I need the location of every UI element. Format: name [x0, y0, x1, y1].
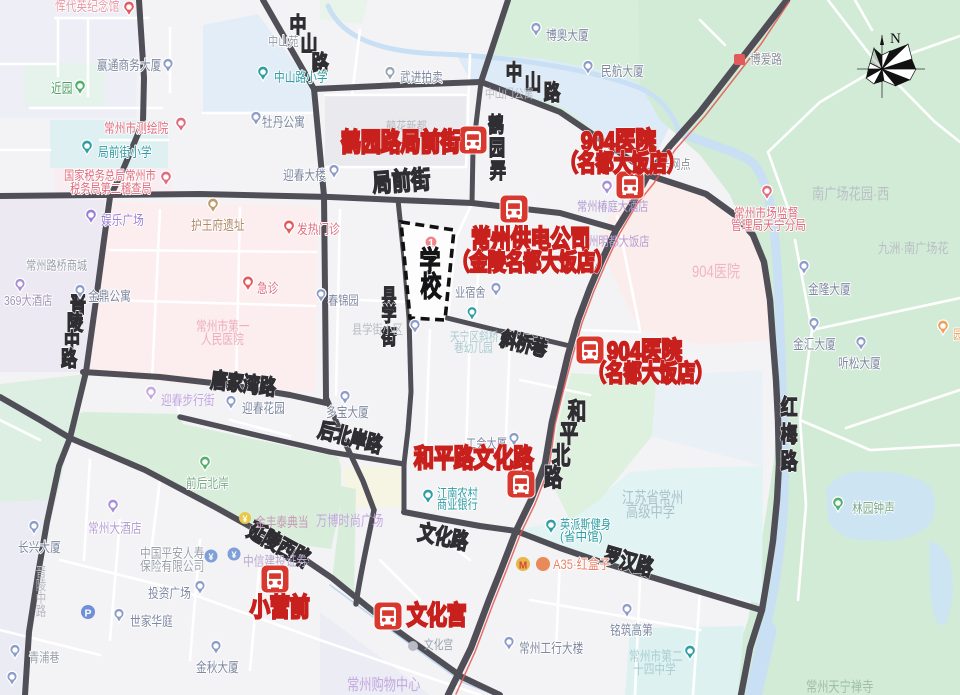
- svg-text:县学街小区: 县学街小区: [352, 322, 403, 337]
- svg-text:投资广场: 投资广场: [148, 585, 191, 601]
- svg-text:红: 红: [781, 394, 798, 420]
- svg-text:金鼎公寓: 金鼎公寓: [88, 288, 131, 304]
- svg-text:中山门公寓: 中山门公寓: [485, 86, 533, 101]
- svg-text:¥: ¥: [231, 550, 236, 560]
- svg-text:904医院: 904医院: [692, 262, 740, 281]
- svg-text:护王府遗址: 护王府遗址: [191, 217, 245, 233]
- svg-text:万博时尚广场: 万博时尚广场: [316, 513, 383, 530]
- svg-text:金汇大厦: 金汇大厦: [793, 336, 836, 352]
- svg-text:园: 园: [489, 137, 505, 160]
- svg-text:迎春大楼: 迎春大楼: [283, 167, 326, 183]
- svg-text:A35·红盒子: A35·红盒子: [553, 556, 610, 572]
- svg-text:听松大厦: 听松大厦: [838, 355, 881, 371]
- svg-text:常州工行大楼: 常州工行大楼: [519, 640, 583, 656]
- svg-text:长兴大厦: 长兴大厦: [18, 539, 61, 555]
- svg-text:武进拍卖: 武进拍卖: [400, 69, 443, 85]
- svg-text:多宝大厦: 多宝大厦: [326, 404, 369, 420]
- svg-text:娱乐广场: 娱乐广场: [101, 212, 144, 228]
- svg-text:园: 园: [953, 327, 960, 342]
- svg-text:路: 路: [61, 346, 78, 371]
- svg-text:路: 路: [544, 80, 561, 105]
- svg-text:金丰泰典当: 金丰泰典当: [255, 514, 309, 530]
- svg-text:前后北岸: 前后北岸: [186, 475, 229, 491]
- svg-text:鹤园路局前街: 鹤园路局前街: [341, 127, 461, 157]
- svg-text:管理局天宁分局: 管理局天宁分局: [731, 217, 806, 233]
- svg-text:（金陵名都大饭店）: （金陵名都大饭店）: [452, 249, 613, 275]
- svg-text:世家华庭: 世家华庭: [130, 613, 173, 629]
- svg-text:（名都大饭店）: （名都大饭店）: [588, 360, 713, 386]
- svg-text:恽代英纪念馆: 恽代英纪念馆: [55, 0, 119, 14]
- svg-text:南广场花园·西: 南广场花园·西: [812, 186, 889, 203]
- svg-text:常州椿庭大酒店: 常州椿庭大酒店: [577, 198, 648, 214]
- svg-text:路: 路: [36, 603, 47, 619]
- svg-text:鹤: 鹤: [488, 112, 504, 137]
- svg-text:P: P: [84, 608, 91, 620]
- svg-text:牡丹公寓: 牡丹公寓: [262, 114, 305, 130]
- svg-text:小营前: 小营前: [250, 592, 310, 622]
- svg-text:迎春花园: 迎春花园: [242, 400, 285, 416]
- svg-text:发热门诊: 发热门诊: [297, 221, 340, 237]
- svg-text:铭筑高第: 铭筑高第: [610, 622, 653, 638]
- svg-text:369大酒店: 369大酒店: [4, 293, 53, 308]
- svg-text:高级中学: 高级中学: [626, 503, 675, 521]
- svg-text:常州路桥商城: 常州路桥商城: [26, 258, 87, 273]
- svg-text:税务局第二稽查局: 税务局第二稽查局: [70, 180, 152, 196]
- svg-text:急诊: 急诊: [257, 280, 278, 296]
- svg-text:弄: 弄: [490, 160, 506, 183]
- svg-text:嬴通商务大厦: 嬴通商务大厦: [97, 57, 161, 73]
- svg-text:路: 路: [781, 448, 798, 474]
- svg-text:校: 校: [421, 271, 442, 302]
- svg-text:金隆大厦: 金隆大厦: [808, 281, 851, 297]
- svg-text:中: 中: [506, 60, 523, 85]
- svg-text:商业银行: 商业银行: [437, 497, 478, 512]
- svg-text:梅: 梅: [781, 421, 798, 447]
- svg-text:中山路小学: 中山路小学: [274, 69, 328, 85]
- svg-text:博爱路: 博爱路: [750, 51, 782, 67]
- svg-text:局前街: 局前街: [371, 165, 431, 198]
- svg-text:¥: ¥: [242, 514, 247, 524]
- svg-text:常州天宁禅寺: 常州天宁禅寺: [806, 679, 873, 695]
- svg-text:文化宫: 文化宫: [407, 600, 467, 630]
- svg-text:路: 路: [544, 464, 563, 492]
- svg-text:人民医院: 人民医院: [201, 331, 244, 347]
- svg-text:青浦巷: 青浦巷: [29, 650, 60, 665]
- svg-text:迎春步行街: 迎春步行街: [161, 392, 215, 408]
- svg-text:（名都大饭店）: （名都大饭店）: [560, 150, 685, 176]
- svg-text:十四中学: 十四中学: [633, 661, 676, 677]
- svg-text:春锦园: 春锦园: [328, 293, 359, 308]
- svg-text:林园钟声: 林园钟声: [852, 500, 895, 516]
- svg-text:中山苑: 中山苑: [268, 34, 299, 49]
- svg-text:文化宫: 文化宫: [424, 637, 453, 652]
- svg-text:民航大厦: 民航大厦: [601, 63, 644, 79]
- svg-text:(省中馆): (省中馆): [560, 529, 603, 544]
- svg-text:常州大酒店: 常州大酒店: [88, 520, 142, 536]
- svg-text:九洲·南广场花: 九洲·南广场花: [878, 240, 949, 256]
- svg-text:近园: 近园: [51, 80, 72, 96]
- svg-text:常州购物中心: 常州购物中心: [347, 676, 421, 694]
- svg-text:巷幼儿园: 巷幼儿园: [454, 341, 493, 355]
- svg-text:和平路文化路: 和平路文化路: [414, 443, 534, 473]
- svg-text:M: M: [519, 561, 527, 572]
- svg-text:博奥大厦: 博奥大厦: [546, 27, 589, 43]
- svg-text:常州市测绘院: 常州市测绘院: [104, 120, 168, 136]
- svg-text:业宿舍: 业宿舍: [455, 284, 486, 300]
- svg-text:¥: ¥: [208, 552, 213, 562]
- svg-text:金秋大厦: 金秋大厦: [196, 659, 239, 675]
- svg-text:N: N: [890, 31, 901, 47]
- svg-text:保险有限公司: 保险有限公司: [140, 558, 204, 574]
- svg-text:局前街小学: 局前街小学: [98, 144, 152, 160]
